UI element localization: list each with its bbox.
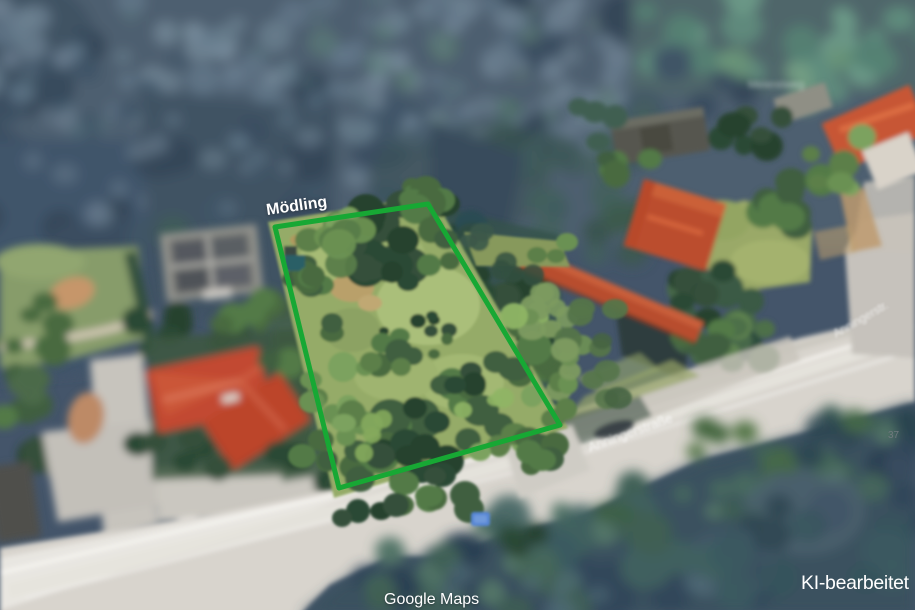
svg-text:Google Maps: Google Maps [384,591,479,608]
svg-text:Meiereiweg: Meiereiweg [748,79,804,91]
svg-text:KI-bearbeitet: KI-bearbeitet [801,572,910,594]
svg-text:37: 37 [888,430,900,441]
